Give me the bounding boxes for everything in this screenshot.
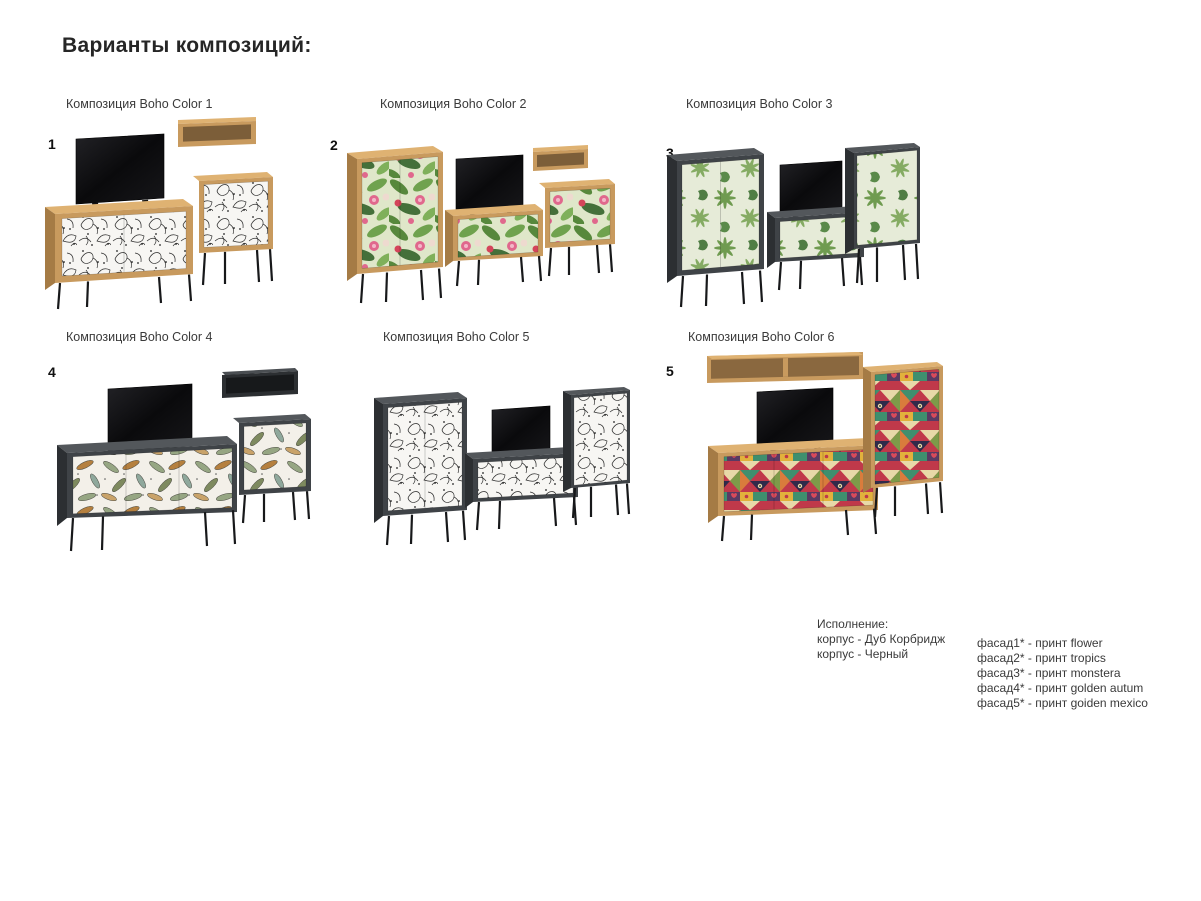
- composition-2-label: Композиция Boho Color 2: [380, 97, 526, 111]
- composition-3-image: [662, 135, 927, 310]
- legend-facade-line: фасад4* - принт golden autum: [977, 681, 1148, 696]
- tall-cabinet: [347, 146, 443, 303]
- tv-stand: [708, 438, 878, 541]
- legend-facade-line: фасад1* - принт flower: [977, 636, 1148, 651]
- composition-1-image: [43, 112, 278, 312]
- composition-4-image: [55, 365, 315, 555]
- composition-1-label: Композиция Boho Color 1: [66, 97, 212, 111]
- composition-2-number: 2: [330, 137, 338, 153]
- composition-4-label: Композиция Boho Color 4: [66, 330, 212, 344]
- catalog-page: Варианты композиций: Композиция Boho Col…: [0, 0, 1201, 901]
- tall-cabinet: [667, 148, 764, 307]
- composition-5-image: [370, 385, 635, 550]
- composition-6-image: [700, 350, 950, 545]
- composition-3-label: Композиция Boho Color 3: [686, 97, 832, 111]
- wall-shelf: [533, 145, 588, 171]
- cabinet: [845, 143, 920, 283]
- tv-stand: [465, 447, 578, 530]
- composition-5-label: Композиция Boho Color 5: [383, 330, 529, 344]
- legend-body-line: корпус - Дуб Корбридж: [817, 632, 945, 647]
- wall-shelf: [178, 117, 256, 147]
- tv-stand: [57, 436, 237, 551]
- legend-facade-line: фасад5* - принт goiden mexico: [977, 696, 1148, 711]
- cabinet: [539, 179, 615, 276]
- cabinet: [193, 172, 273, 285]
- composition-6-label: Композиция Boho Color 6: [688, 330, 834, 344]
- cabinet: [233, 414, 311, 523]
- wall-shelf: [707, 352, 863, 383]
- legend-body-line: корпус - Черный: [817, 647, 945, 662]
- tall-cabinet: [374, 392, 467, 545]
- composition-2-image: [343, 132, 623, 307]
- tv-stand: [445, 204, 543, 286]
- page-title: Варианты композиций:: [62, 34, 312, 58]
- legend-facades: фасад1* - принт flower фасад2* - принт t…: [977, 636, 1148, 711]
- legend-facade-line: фасад2* - принт tropics: [977, 651, 1148, 666]
- tv-stand: [45, 199, 193, 309]
- legend-execution: Исполнение: корпус - Дуб Корбридж корпус…: [817, 617, 945, 662]
- legend-facade-line: фасад3* - принт monstera: [977, 666, 1148, 681]
- wall-shelf: [222, 368, 298, 398]
- composition-6-number: 5: [666, 363, 674, 379]
- tv: [76, 134, 164, 209]
- legend-title: Исполнение:: [817, 617, 945, 632]
